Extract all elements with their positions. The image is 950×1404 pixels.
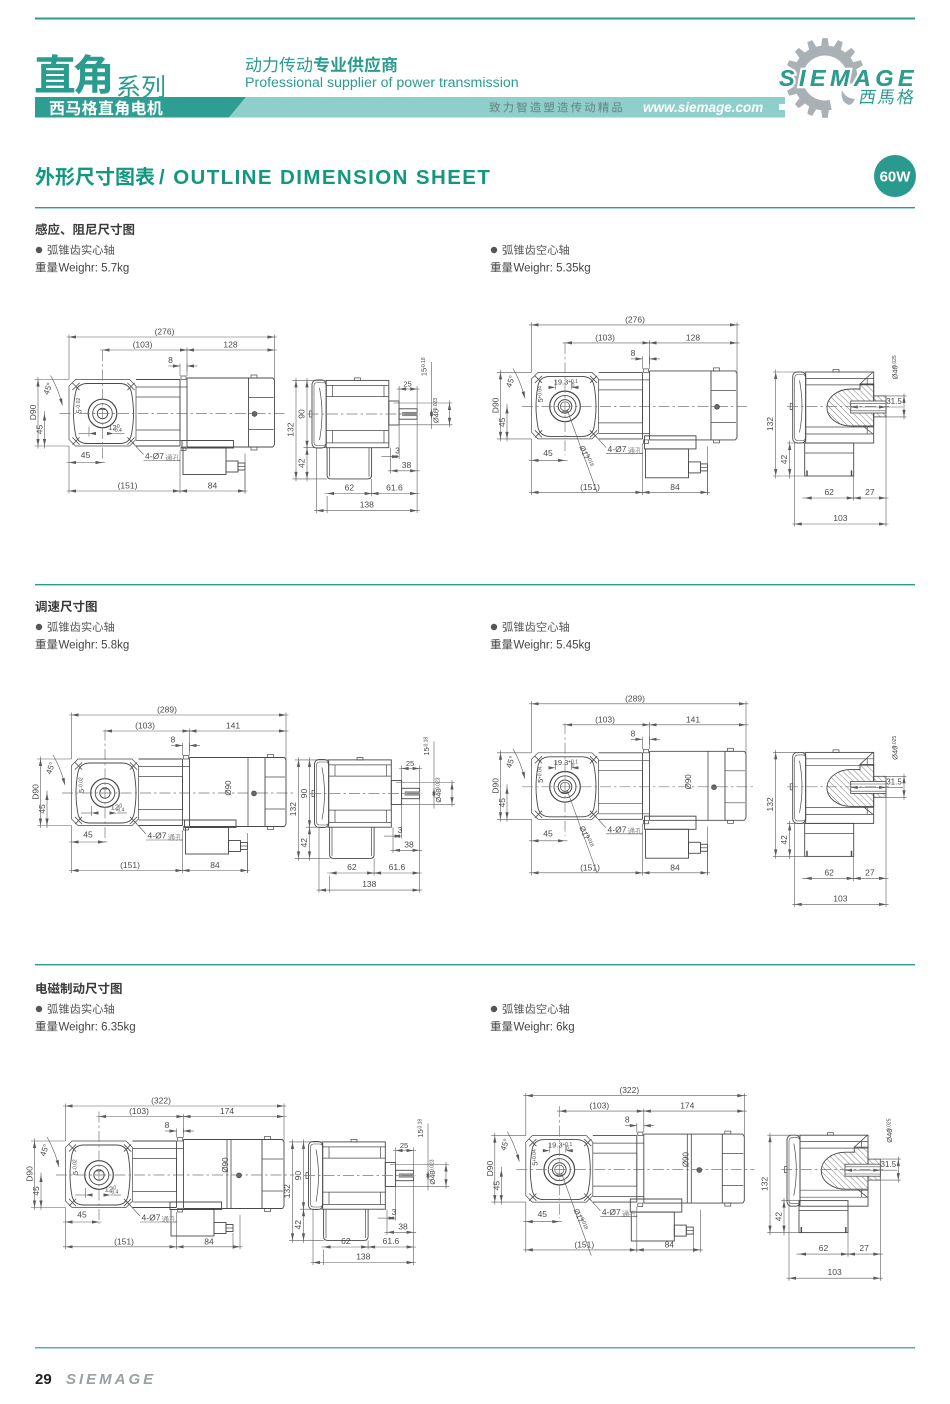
svg-text:61.6: 61.6 (383, 1236, 400, 1246)
svg-text:45°: 45° (42, 381, 55, 395)
svg-text:27: 27 (859, 1243, 869, 1253)
svg-text:45: 45 (543, 448, 553, 458)
svg-text:31.5: 31.5 (886, 397, 902, 406)
svg-text:(276): (276) (625, 314, 645, 324)
svg-text:-0.02: -0.02 (79, 777, 85, 789)
svg-text:-0.02: -0.02 (76, 398, 82, 410)
svg-text:42: 42 (293, 1220, 303, 1230)
svg-text:138: 138 (360, 500, 374, 510)
svg-text:SIEMAGE: SIEMAGE (779, 65, 915, 91)
svg-text:25: 25 (400, 1141, 408, 1150)
svg-text:8: 8 (168, 355, 173, 365)
svg-text:Weighr: 6.35kg: Weighr: 6.35kg (59, 1022, 136, 1034)
svg-text:84: 84 (208, 481, 218, 491)
svg-text:132: 132 (288, 802, 298, 816)
svg-text:/ OUTLINE DIMENSION SHEET: / OUTLINE DIMENSION SHEET (159, 166, 491, 189)
svg-text:84: 84 (670, 862, 680, 872)
svg-text:90: 90 (299, 789, 309, 799)
svg-text:38: 38 (404, 840, 414, 850)
svg-text:90: 90 (297, 409, 307, 419)
svg-text:www.siemage.com: www.siemage.com (643, 100, 763, 115)
svg-text:Ø90: Ø90 (684, 774, 693, 790)
svg-text:8: 8 (631, 348, 636, 358)
svg-text:3: 3 (392, 1207, 397, 1217)
svg-text:Weighr: 5.45kg: Weighr: 5.45kg (514, 640, 591, 652)
svg-text:D90: D90 (25, 1166, 35, 1182)
svg-text:-0.18: -0.18 (418, 1119, 424, 1131)
svg-text:-0.18: -0.18 (421, 357, 427, 369)
svg-text:4-Ø7: 4-Ø7 (602, 1207, 621, 1217)
svg-text:103: 103 (833, 893, 847, 903)
svg-text:8: 8 (631, 728, 636, 738)
svg-text:(151): (151) (118, 481, 138, 491)
svg-text:(151): (151) (574, 1239, 594, 1249)
svg-text:-0.18: -0.18 (424, 737, 430, 749)
svg-text:-0.023: -0.023 (436, 777, 442, 791)
svg-text:(289): (289) (625, 693, 645, 703)
svg-text:27: 27 (865, 487, 875, 497)
svg-text:27: 27 (865, 867, 875, 877)
svg-text:62: 62 (341, 1236, 351, 1246)
svg-text:61.6: 61.6 (389, 862, 406, 872)
svg-text:29: 29 (35, 1371, 52, 1388)
svg-text:42: 42 (299, 838, 309, 848)
svg-text:(151): (151) (114, 1236, 134, 1246)
svg-text:8: 8 (625, 1115, 630, 1125)
svg-text:132: 132 (760, 1177, 770, 1191)
svg-text:Ø90: Ø90 (224, 780, 233, 796)
svg-text:(322): (322) (151, 1096, 171, 1106)
svg-text:38: 38 (398, 1222, 408, 1232)
svg-text:138: 138 (356, 1251, 370, 1261)
svg-text:138: 138 (362, 879, 376, 889)
svg-text:45: 45 (77, 1210, 87, 1220)
svg-text:4-Ø7: 4-Ø7 (145, 451, 164, 461)
svg-text:61.6: 61.6 (386, 483, 403, 493)
svg-text:D90: D90 (485, 1161, 495, 1177)
svg-text:25: 25 (406, 759, 414, 768)
svg-text:(289): (289) (157, 705, 177, 715)
svg-text:25: 25 (403, 380, 411, 389)
svg-text:-0.025: -0.025 (887, 1118, 893, 1132)
svg-text:174: 174 (220, 1106, 234, 1116)
svg-text:132: 132 (765, 417, 775, 431)
svg-text:141: 141 (226, 721, 240, 731)
svg-text:60W: 60W (880, 169, 912, 186)
svg-text:Weighr: 6kg: Weighr: 6kg (514, 1022, 575, 1034)
svg-text:45°: 45° (504, 755, 517, 769)
svg-text:128: 128 (686, 332, 700, 342)
svg-text:45°: 45° (499, 1138, 512, 1152)
svg-text:-0.4: -0.4 (110, 1190, 119, 1196)
svg-text:SIEMAGE: SIEMAGE (66, 1371, 156, 1388)
svg-text:62: 62 (824, 867, 834, 877)
svg-text:84: 84 (665, 1239, 675, 1249)
svg-text:Weighr: 5.8kg: Weighr: 5.8kg (59, 640, 130, 652)
svg-text:4-Ø7: 4-Ø7 (608, 444, 627, 454)
svg-text:Weighr: 5.7kg: Weighr: 5.7kg (59, 263, 130, 275)
svg-text:3: 3 (398, 825, 403, 835)
svg-text:42: 42 (779, 455, 789, 465)
svg-text:(103): (103) (129, 1106, 149, 1116)
svg-text:132: 132 (282, 1184, 292, 1198)
svg-text:D90: D90 (28, 404, 38, 420)
svg-text:Ø90: Ø90 (221, 1157, 230, 1173)
svg-text:(151): (151) (120, 860, 140, 870)
svg-text:62: 62 (819, 1243, 829, 1253)
svg-text:19.3: 19.3 (554, 758, 569, 767)
svg-text:90: 90 (293, 1171, 303, 1181)
svg-text:38: 38 (402, 460, 412, 470)
svg-text:Weighr: 5.35kg: Weighr: 5.35kg (514, 263, 591, 275)
svg-text:-0.023: -0.023 (430, 1159, 436, 1173)
svg-text:(103): (103) (133, 340, 153, 350)
svg-text:8: 8 (171, 735, 176, 745)
svg-text:45°: 45° (44, 761, 57, 775)
svg-text:(322): (322) (619, 1085, 639, 1095)
svg-text:45: 45 (81, 450, 91, 460)
svg-text:132: 132 (765, 797, 775, 811)
svg-text:(103): (103) (135, 721, 155, 731)
svg-text:45: 45 (538, 1209, 548, 1219)
svg-text:-0.025: -0.025 (892, 355, 898, 369)
svg-text:45: 45 (491, 1181, 501, 1191)
svg-text:(151): (151) (580, 482, 600, 492)
svg-text:45: 45 (37, 804, 47, 814)
svg-text:103: 103 (828, 1267, 842, 1277)
svg-text:84: 84 (670, 482, 680, 492)
svg-text:Ø90: Ø90 (681, 1151, 690, 1167)
svg-text:84: 84 (204, 1236, 214, 1246)
svg-text:42: 42 (774, 1212, 784, 1222)
svg-text:4-Ø7: 4-Ø7 (608, 824, 627, 834)
svg-text:45: 45 (543, 828, 553, 838)
svg-text:174: 174 (680, 1101, 694, 1111)
svg-text:42: 42 (297, 458, 307, 468)
svg-text:62: 62 (345, 483, 355, 493)
svg-text:Professional supplier of power: Professional supplier of power transmiss… (245, 75, 519, 91)
svg-text:(103): (103) (595, 714, 615, 724)
svg-text:45°: 45° (504, 374, 517, 388)
svg-text:D90: D90 (491, 397, 501, 413)
svg-text:45°: 45° (38, 1143, 51, 1157)
svg-text:42: 42 (779, 835, 789, 845)
svg-text:45: 45 (83, 830, 93, 840)
svg-text:62: 62 (824, 487, 834, 497)
svg-text:19.3: 19.3 (554, 377, 569, 386)
svg-text:-0.4: -0.4 (116, 808, 125, 814)
svg-text:+0.04: +0.04 (538, 766, 544, 779)
svg-text:19.3: 19.3 (548, 1141, 563, 1150)
svg-text:84: 84 (210, 860, 220, 870)
svg-text:45: 45 (497, 417, 507, 427)
svg-text:+0.04: +0.04 (532, 1149, 538, 1162)
svg-text:4-Ø7: 4-Ø7 (142, 1213, 161, 1223)
svg-text:(151): (151) (580, 862, 600, 872)
svg-text:103: 103 (833, 513, 847, 523)
svg-text:45: 45 (31, 1186, 41, 1196)
svg-text:62: 62 (347, 862, 357, 872)
svg-text:-0.4: -0.4 (113, 428, 122, 434)
svg-text:(276): (276) (155, 327, 175, 337)
svg-text:141: 141 (686, 714, 700, 724)
svg-text:8: 8 (165, 1120, 170, 1130)
svg-text:-0.023: -0.023 (433, 398, 439, 412)
svg-text:(103): (103) (595, 332, 615, 342)
svg-text:4-Ø7: 4-Ø7 (148, 831, 167, 841)
svg-text:-0.025: -0.025 (892, 735, 898, 749)
svg-text:31.5: 31.5 (881, 1160, 897, 1169)
svg-text:128: 128 (223, 340, 237, 350)
svg-text:D90: D90 (491, 778, 501, 794)
svg-text:45: 45 (35, 425, 45, 435)
svg-text:31.5: 31.5 (886, 777, 902, 786)
svg-text:132: 132 (286, 422, 296, 436)
svg-text:-0.02: -0.02 (73, 1159, 79, 1171)
svg-text:3: 3 (395, 446, 400, 456)
svg-text:+0.04: +0.04 (538, 386, 544, 399)
svg-text:D90: D90 (31, 784, 41, 800)
svg-text:(103): (103) (589, 1101, 609, 1111)
svg-text:45: 45 (497, 798, 507, 808)
